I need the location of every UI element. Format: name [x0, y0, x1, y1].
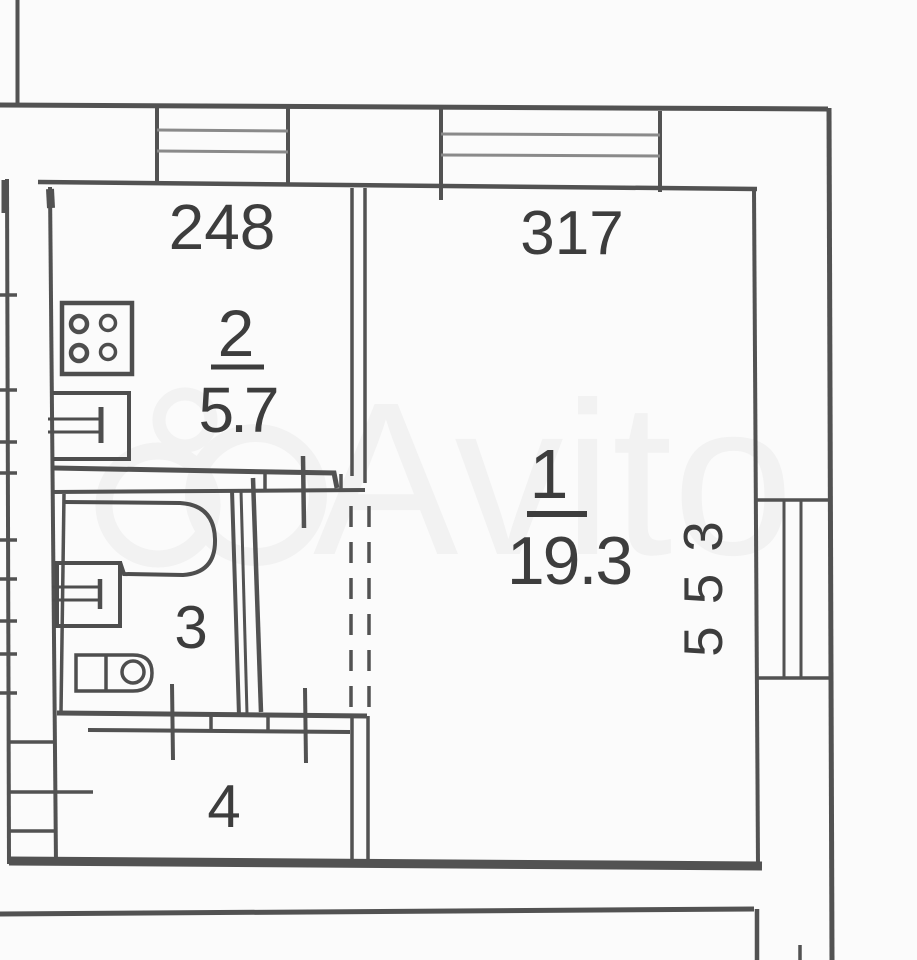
svg-text:317: 317: [520, 199, 623, 268]
svg-text:553: 553: [672, 499, 734, 657]
svg-text:1: 1: [530, 435, 569, 513]
svg-text:4: 4: [207, 773, 240, 840]
svg-text:2: 2: [218, 296, 255, 370]
svg-text:5.7: 5.7: [199, 374, 277, 446]
svg-text:19.3: 19.3: [507, 523, 631, 599]
svg-text:3: 3: [174, 594, 207, 661]
svg-text:248: 248: [169, 191, 276, 263]
